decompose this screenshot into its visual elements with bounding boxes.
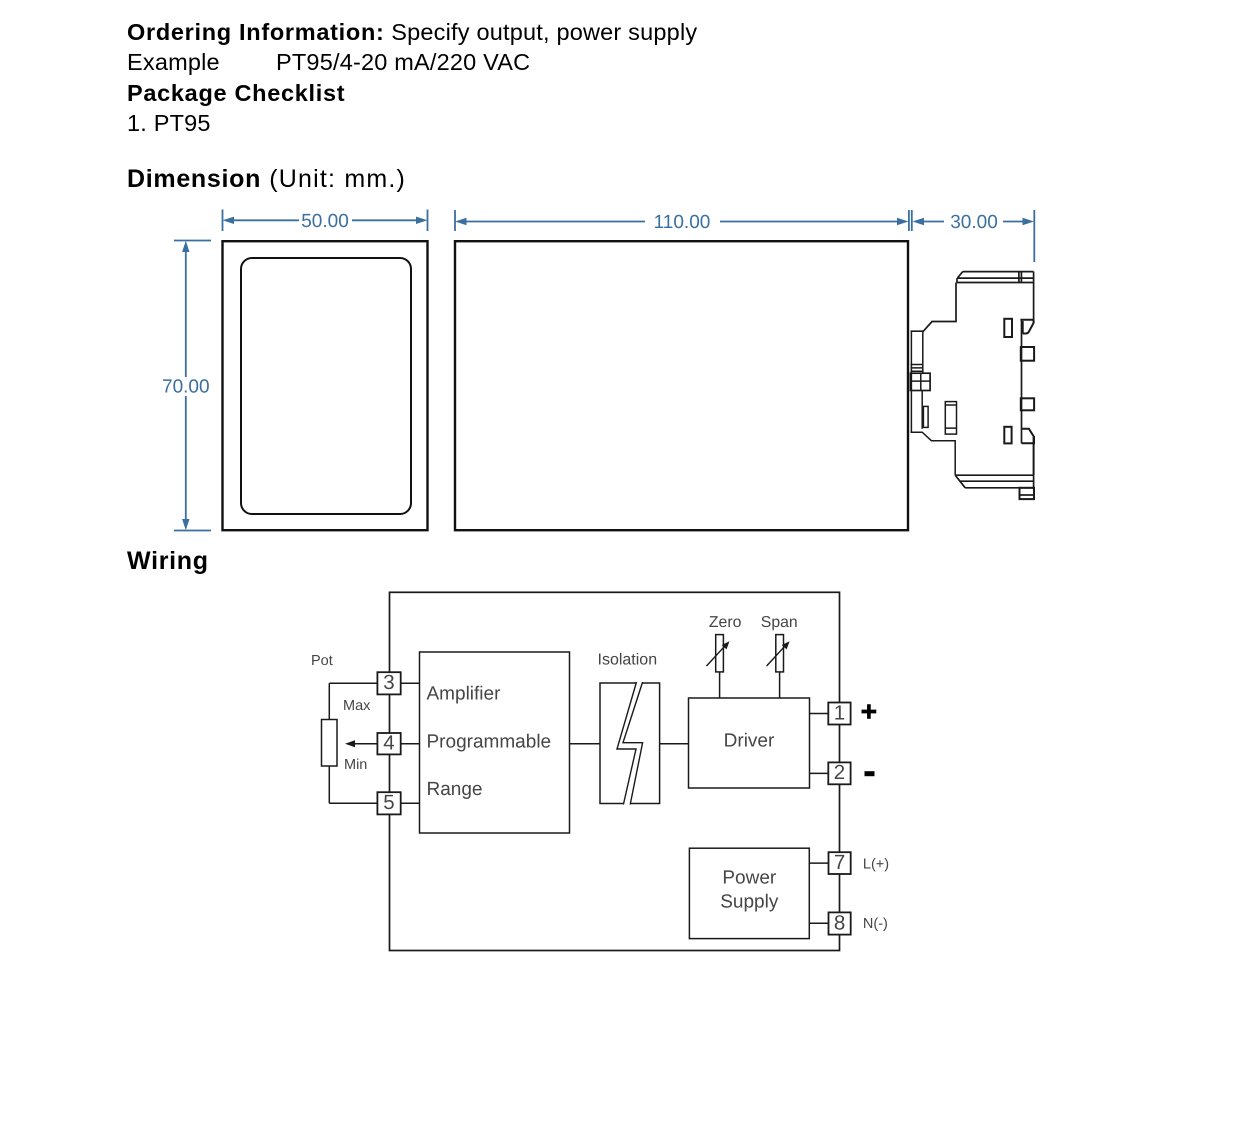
svg-text:L(+): L(+) — [863, 856, 889, 872]
svg-text:7: 7 — [834, 851, 845, 874]
svg-text:1: 1 — [834, 701, 845, 724]
svg-text:2: 2 — [834, 761, 845, 784]
svg-text:4: 4 — [383, 732, 394, 755]
svg-text:3: 3 — [383, 671, 394, 694]
svg-text:5: 5 — [383, 791, 394, 814]
svg-text:Supply: Supply — [720, 892, 779, 913]
svg-text:Power: Power — [722, 868, 777, 889]
svg-text:Max: Max — [343, 698, 371, 714]
svg-text:110.00: 110.00 — [654, 212, 711, 233]
svg-text:Range: Range — [427, 779, 483, 800]
svg-text:8: 8 — [834, 911, 845, 934]
svg-text:Driver: Driver — [724, 731, 775, 752]
svg-text:30.00: 30.00 — [950, 212, 998, 233]
svg-text:N(-): N(-) — [863, 916, 888, 932]
svg-text:Programmable: Programmable — [427, 731, 552, 752]
svg-text:Span: Span — [761, 614, 798, 631]
svg-text:Amplifier: Amplifier — [427, 684, 502, 705]
svg-text:Zero: Zero — [709, 614, 742, 631]
svg-text:70.00: 70.00 — [162, 377, 210, 398]
svg-text:Isolation: Isolation — [598, 652, 658, 669]
svg-text:Pot: Pot — [311, 653, 333, 669]
svg-text:Min: Min — [344, 757, 367, 773]
svg-text:50.00: 50.00 — [301, 211, 349, 232]
